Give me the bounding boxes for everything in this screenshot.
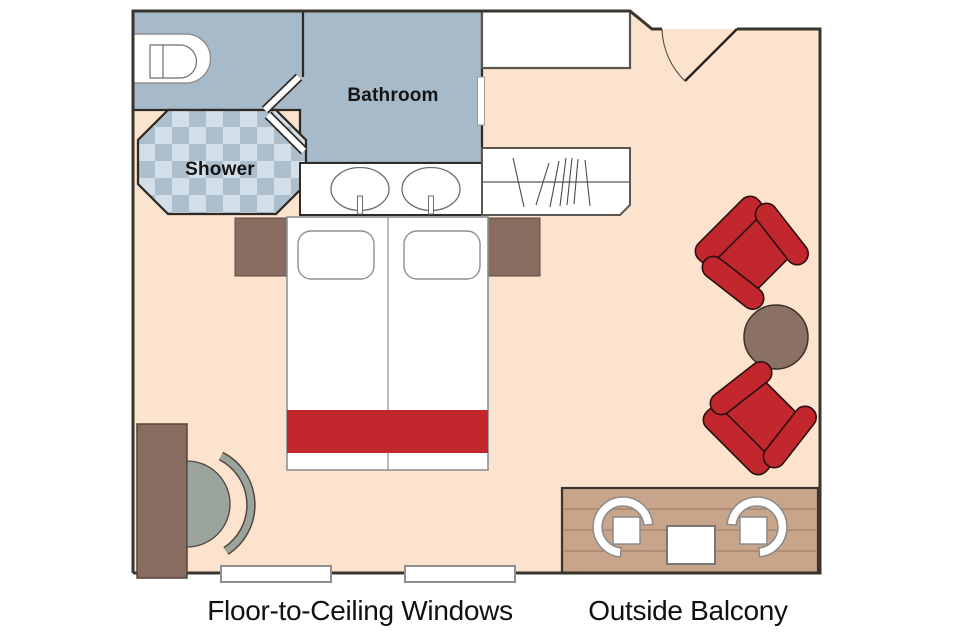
faucet-left xyxy=(358,196,363,214)
round-side-table xyxy=(744,305,808,369)
desk xyxy=(137,424,187,578)
overhead-cabinet xyxy=(482,11,630,68)
floor-window-left xyxy=(221,566,331,582)
nightstand-left xyxy=(235,218,287,276)
balcony-caption: Outside Balcony xyxy=(588,595,788,626)
floor-plan: Bathroom Shower Floor-to-Ceiling Windows… xyxy=(0,0,960,640)
pillow-left xyxy=(298,231,374,279)
wardrobe-with-hangers xyxy=(482,148,630,215)
double-sink-vanity xyxy=(300,163,482,215)
bed-runner xyxy=(287,410,488,453)
bathroom-label: Bathroom xyxy=(347,85,438,106)
floor-plan-stage: Bathroom Shower Floor-to-Ceiling Windows… xyxy=(0,0,960,640)
double-bed xyxy=(287,217,488,470)
shower-label: Shower xyxy=(185,159,255,180)
windows-caption: Floor-to-Ceiling Windows xyxy=(207,595,513,626)
sliding-bathroom-door xyxy=(478,77,485,125)
nightstand-right xyxy=(488,218,540,276)
toilet xyxy=(133,34,210,83)
faucet-right xyxy=(429,196,434,214)
balcony-table xyxy=(667,526,715,564)
floor-window-right xyxy=(405,566,515,582)
pillow-right xyxy=(404,231,480,279)
